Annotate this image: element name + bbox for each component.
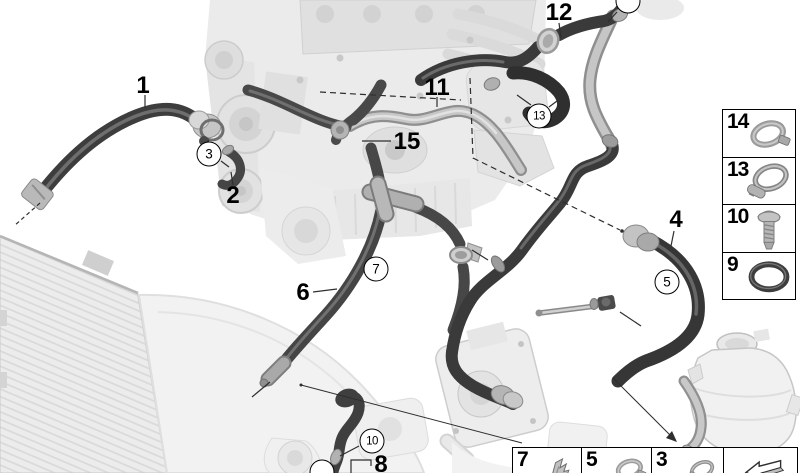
legend-box-14[interactable]: 14 (722, 109, 796, 158)
callout-label-8[interactable]: 8 (374, 453, 387, 473)
hose-4 (618, 241, 698, 381)
ref-line-4 (613, 378, 673, 438)
circled-callout-10[interactable]: 10 (360, 429, 385, 454)
bolt-icon (744, 207, 794, 251)
callout-label-4[interactable]: 4 (669, 208, 682, 232)
parts-diagram: 124681112153571013 1413109 753 (0, 0, 800, 473)
leader-13b (549, 101, 557, 107)
screw-clamp-icon (744, 159, 794, 203)
callout-label-15[interactable]: 15 (394, 130, 421, 154)
callout-label-6[interactable]: 6 (296, 281, 309, 305)
leader-4 (671, 231, 674, 246)
legend-number: 5 (586, 449, 597, 470)
legend-box-9[interactable]: 9 (722, 252, 796, 301)
leader-sensor (620, 312, 641, 326)
retaining-clip-icon (541, 451, 579, 473)
callout-label-2[interactable]: 2 (226, 184, 239, 208)
circled-callout-3[interactable]: 3 (197, 142, 222, 167)
bottom-legend-box-5[interactable]: 5 (581, 447, 652, 473)
diagram-artwork (0, 0, 800, 473)
legend-number: 9 (727, 254, 738, 275)
callout-label-1[interactable]: 1 (136, 74, 149, 98)
hose-clamp-icon (744, 112, 794, 156)
hose-1 (37, 109, 201, 199)
legend-box-13[interactable]: 13 (722, 157, 796, 206)
o-ring-icon (744, 254, 794, 298)
bottom-legend-box-3[interactable]: 3 (651, 447, 724, 473)
legend-number: 3 (656, 449, 667, 470)
callout-label-12[interactable]: 12 (546, 1, 573, 25)
legend-number: 7 (517, 449, 528, 470)
legend-box-10[interactable]: 10 (722, 204, 796, 253)
circled-callout-13[interactable]: 13 (527, 104, 552, 129)
small-clamp-icon (683, 451, 721, 473)
hose-clamp-icon (611, 451, 649, 473)
circled-callout-7[interactable]: 7 (364, 257, 389, 282)
continue-arrow-icon (733, 451, 795, 473)
bottom-legend-box-arrow[interactable] (723, 447, 798, 473)
sensor-pipe (540, 306, 596, 313)
leader-6 (313, 289, 337, 292)
hose-12-light-branch (590, 16, 613, 146)
radiator-watermark (0, 236, 167, 473)
callout-label-11[interactable]: 11 (424, 76, 449, 100)
bottom-legend-box-7[interactable]: 7 (512, 447, 582, 473)
circled-callout-5[interactable]: 5 (655, 270, 680, 295)
